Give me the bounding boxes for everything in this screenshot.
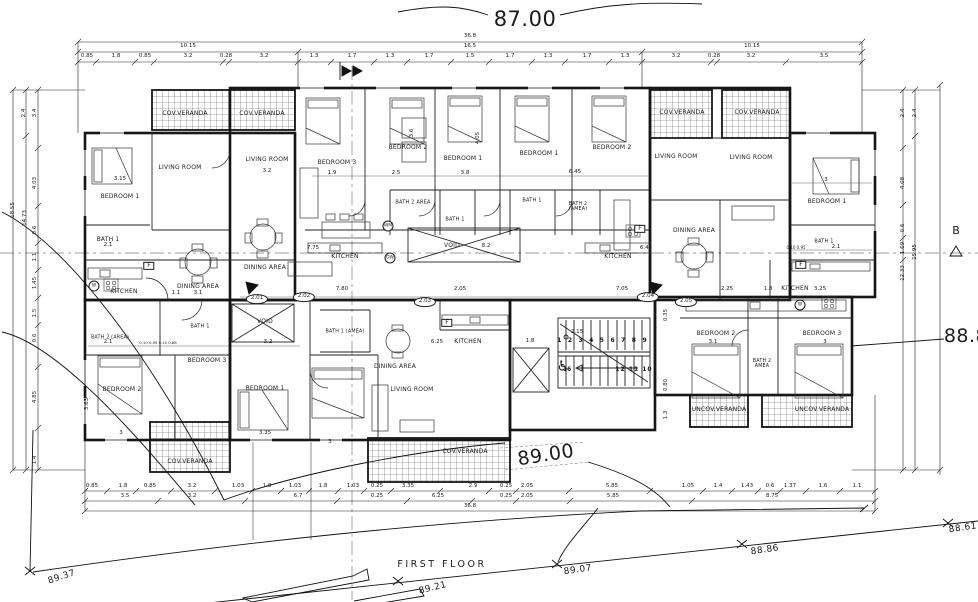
room-label: KITCHEN: [331, 254, 358, 260]
dimension-label: 3.63: [85, 398, 91, 410]
stair-numbers-bottom: 12 11 10: [615, 367, 652, 373]
room-label: BATH 1 (AMEA): [326, 329, 365, 334]
dimension-label: 3.5: [121, 494, 130, 500]
dimension-label: 1.3: [621, 54, 630, 60]
dimension-label: 6.25: [432, 494, 444, 500]
dimension-label: 0.10 0.95: [786, 246, 805, 250]
dimension-label: 1.37: [784, 484, 796, 490]
room-label: LIVING ROOM: [654, 154, 697, 160]
dimension-label: 4.05: [476, 132, 482, 144]
dimension-label: 6.45: [640, 246, 652, 252]
dimension-label: 15.95: [913, 244, 919, 260]
dimension-label: 3.2: [188, 484, 197, 490]
dimension-label: 4.08: [901, 177, 907, 189]
dimension-label: 2.1: [832, 245, 841, 251]
dimension-label: 5.85: [607, 494, 619, 500]
dimension-label: 2.05: [521, 494, 533, 500]
dimension-label: 1.3: [386, 54, 395, 60]
dimension-label: 3.1: [194, 291, 203, 297]
room-label: BATH 1: [190, 324, 209, 329]
dimension-label: 2.25: [721, 287, 733, 293]
dimension-label: 0.6: [901, 224, 907, 233]
room-label: BEDROOM 1: [444, 156, 483, 162]
dimension-label: 0.6: [33, 226, 39, 235]
plan-drawing: [0, 0, 978, 602]
dimension-label: 2.5: [392, 171, 401, 177]
dimension-label: 1.03: [232, 484, 244, 490]
room-label: VOID: [257, 319, 273, 325]
room-label: BEDROOM 3: [803, 331, 842, 337]
dimension-label: 1.7: [583, 54, 592, 60]
room-label: BATH 1: [445, 217, 464, 222]
dimension-label: 7.05: [616, 287, 628, 293]
spot-elevation: 88.8: [944, 327, 978, 347]
dimension-label: 3.5: [820, 54, 829, 60]
dimension-label: 1.6: [819, 484, 828, 490]
dimension-label: 4.03: [33, 177, 39, 189]
dimension-label: 0.6: [766, 484, 775, 490]
dimension-label: 0.85: [144, 484, 156, 490]
room-label: BEDROOM 1: [101, 194, 140, 200]
dimension-label: 1.8: [112, 54, 121, 60]
spot-elevation: 87.00: [494, 8, 557, 30]
room-label: BEDROOM 1: [520, 151, 559, 157]
dimension-label: 0.85: [86, 484, 98, 490]
room-label: LIVING ROOM: [158, 165, 201, 171]
room-label: UNCOV.VERANDA: [795, 407, 850, 413]
room-label: BEDROOM 3: [188, 358, 227, 364]
dimension-label: 3: [823, 340, 827, 346]
unit-number: 2.05: [675, 297, 697, 307]
dimension-label: 0.35: [664, 309, 670, 321]
stair-number-16: 16: [563, 367, 571, 373]
unit-number: 2.04: [637, 292, 659, 302]
dimension-label: 0.28: [220, 54, 232, 60]
dimension-label: 1.69: [901, 242, 907, 254]
room-label: BEDROOM 2: [389, 145, 428, 151]
dimension-label: 1.5: [33, 309, 39, 318]
unit-number: 2.02: [293, 292, 315, 302]
dimension-label: 1.8: [764, 287, 773, 293]
dimension-label: 10.15: [180, 44, 196, 50]
dimension-label: 2.1: [104, 243, 113, 249]
dimension-label: 1.8: [526, 339, 535, 345]
room-label: BEDROOM 2: [697, 331, 736, 337]
dimension-label: 1.5: [466, 54, 475, 60]
stair-numbers-top: 1 2 3 4 5 6 7 8 9: [557, 338, 649, 344]
room-label: COV.VERANDA: [734, 110, 779, 116]
unit-number: 2.01: [246, 294, 268, 304]
dimension-label: 0.25: [371, 494, 383, 500]
dimension-label: 3.15: [114, 177, 126, 183]
dimension-label: 1.7: [348, 54, 357, 60]
room-label: BEDROOM 1: [808, 199, 847, 205]
room-label: UNCOV.VERANDA: [692, 407, 747, 413]
dimension-label: 1.1: [172, 291, 181, 297]
dimension-label: 1.45: [33, 277, 39, 289]
fixture-label: W: [795, 300, 806, 311]
dimension-label: 0.85: [139, 54, 151, 60]
dimension-label: 18.55: [11, 202, 17, 218]
dimension-label: 1.03: [347, 484, 359, 490]
dimension-label: 1.7: [425, 54, 434, 60]
dimension-label: 3.2: [672, 54, 681, 60]
dimension-label: 8.2: [482, 244, 491, 250]
dimension-label: 6.7: [294, 494, 303, 500]
room-label: LIVING ROOM: [390, 387, 433, 393]
dimension-label: 3.8: [461, 171, 470, 177]
dimension-label: 3.2: [747, 54, 756, 60]
room-label: BATH 2 (AMEA): [563, 202, 593, 212]
dimension-label: 0.10 0.95 0.10 0.88: [139, 341, 176, 345]
dimension-label: 1.4: [33, 456, 39, 465]
dimension-label: 4.85: [33, 391, 39, 403]
room-label: BATH 1: [522, 198, 541, 203]
dimension-label: 5.85: [606, 484, 618, 490]
dimension-label: 1.05: [682, 484, 694, 490]
unit-number: 2.03: [414, 297, 436, 307]
room-label: KITCHEN: [110, 289, 137, 295]
room-label: COV.VERANDA: [659, 110, 704, 116]
dimension-label: 1.8: [263, 484, 272, 490]
dimension-label: 0.25: [371, 484, 383, 490]
dimension-label: 7.75: [307, 246, 319, 252]
dimension-label: 3: [824, 178, 828, 184]
dimension-label: 2.4: [22, 109, 28, 118]
room-label: BEDROOM 2: [103, 387, 142, 393]
dimension-label: 1.3: [544, 54, 553, 60]
dimension-label: 1.4: [714, 484, 723, 490]
floor-plan-canvas: FIRST FLOOR B ♿ 1 2 3 4 5 6 7 8 9 16 12 …: [0, 0, 978, 602]
dimension-label: 3: [328, 440, 332, 446]
dimension-label: 2.1: [104, 340, 113, 346]
dimension-label: 1.1: [33, 253, 39, 262]
room-label: KITCHEN: [454, 339, 481, 345]
dimension-label: 0.25: [500, 484, 512, 490]
room-label: BATH 2 AMEA: [748, 359, 776, 369]
dimension-label: 12.33: [901, 265, 907, 281]
fixture-label: F: [441, 319, 452, 327]
room-label: BEDROOM 1: [246, 386, 285, 392]
dimension-label: 16.5: [464, 44, 476, 50]
dimension-label: 6.25: [431, 340, 443, 346]
dimension-label: 3.2: [184, 54, 193, 60]
dimension-label: 1.3: [310, 54, 319, 60]
fixture-label: OW: [385, 253, 396, 264]
fixture-label: WM: [383, 221, 394, 232]
room-label: COV.VERANDA: [239, 111, 284, 117]
dimension-label: 3.2: [263, 169, 272, 175]
dimension-label: 0.6: [33, 334, 39, 343]
dimension-label: 1.8: [319, 484, 328, 490]
room-label: VOID: [444, 243, 460, 249]
dimension-label: 1.9: [328, 171, 337, 177]
dimension-label: 0.80: [664, 379, 670, 391]
room-label: KITCHEN: [604, 254, 631, 260]
dimension-label: 3.6: [410, 129, 416, 138]
fixture-label: F: [143, 262, 154, 270]
dimension-label: 2.05: [454, 287, 466, 293]
dimension-label: 0.85: [81, 54, 93, 60]
dimension-label: 3.35: [259, 431, 271, 437]
dimension-label: 3.1: [709, 340, 718, 346]
room-label: COV.VERANDA: [442, 449, 487, 455]
dimension-label: 3: [119, 431, 123, 437]
dimension-label: 14.73: [23, 210, 29, 226]
room-label: COV.VERANDA: [162, 111, 207, 117]
dimension-label: 2.4: [913, 109, 919, 118]
dimension-label: 36.8: [464, 34, 476, 40]
room-label: LIVING ROOM: [729, 155, 772, 161]
dimension-label: 3.4: [33, 109, 39, 118]
dimension-label: 0.28: [708, 54, 720, 60]
furniture: [88, 96, 870, 432]
room-label: LIVING ROOM: [245, 157, 288, 163]
fixture-label: W: [89, 281, 100, 292]
dimension-label: 2.4: [901, 109, 907, 118]
room-label: DINING AREA: [673, 228, 715, 234]
dimension-label: 3.2: [188, 494, 197, 500]
dimension-label: 1.8: [119, 484, 128, 490]
dimension-label: 10.15: [744, 44, 760, 50]
room-label: BEDROOM 3: [318, 160, 357, 166]
fixture-label: F: [795, 261, 806, 269]
dimension-label: 3.2: [264, 340, 273, 346]
dimension-label: 36.8: [464, 504, 476, 510]
room-label: DINING AREA: [244, 265, 286, 271]
dimension-label: 1.03: [289, 484, 301, 490]
dimension-label: 2.05: [521, 484, 533, 490]
dimension-label: 7.80: [336, 287, 348, 293]
dimension-label: 3.35: [402, 484, 414, 490]
room-label: BEDROOM 2: [593, 145, 632, 151]
dimension-label: 2.15: [571, 330, 583, 336]
fixture-label: F: [634, 225, 645, 233]
dimension-label: 2.9: [469, 484, 478, 490]
dimension-label: 3.25: [814, 287, 826, 293]
dimension-label: 1.3: [664, 411, 670, 420]
dimension-label: 0.25: [500, 494, 512, 500]
room-label: COV.VERANDA: [167, 459, 212, 465]
dimension-label: 6.45: [569, 170, 581, 176]
dimension-label: 1.7: [506, 54, 515, 60]
section-marker-b: B: [952, 225, 960, 237]
room-label: DINING AREA: [374, 364, 416, 370]
dimension-label: 1.43: [741, 484, 753, 490]
dimension-label: 3.2: [260, 54, 269, 60]
floor-title: FIRST FLOOR: [397, 560, 486, 570]
dimension-label: 1.1: [853, 484, 862, 490]
room-label: BATH 2 AREA: [395, 200, 430, 205]
dimension-label: 8.75: [766, 494, 778, 500]
room-label: KITCHEN: [781, 286, 808, 292]
